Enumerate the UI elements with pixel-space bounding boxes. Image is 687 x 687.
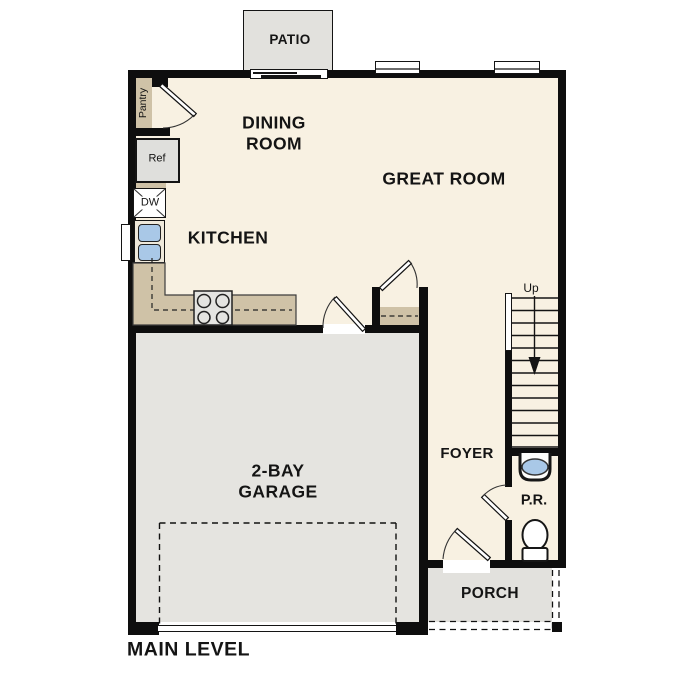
room-label-kitchen: KITCHEN — [188, 228, 269, 249]
coat-closet-door — [380, 261, 418, 291]
room-label-porch: PORCH — [461, 585, 519, 603]
page-title: MAIN LEVEL — [127, 639, 250, 662]
room-label-dining: DINING ROOM — [224, 112, 324, 153]
powder-room-door — [482, 485, 509, 520]
room-label-great: GREAT ROOM — [382, 169, 505, 190]
room-label-patio: PATIO — [269, 32, 310, 48]
plan-linework — [0, 0, 687, 687]
front-door — [443, 529, 490, 561]
floor-plan: PATIO DINING ROOM GREAT ROOM KITCHEN 2-B… — [0, 0, 687, 687]
room-label-powder-room: P.R. — [521, 492, 547, 509]
garage-bay-outline — [160, 523, 397, 624]
dishwasher-label: DW — [140, 197, 160, 210]
stove-icon — [194, 291, 232, 325]
vanity-sink-icon — [520, 453, 550, 480]
pantry-door — [160, 84, 197, 129]
pantry-label: Pantry — [137, 88, 149, 118]
garage-entry-door — [323, 297, 366, 332]
stairs-up-label: Up — [523, 281, 538, 295]
refrigerator-label: Ref — [148, 153, 165, 166]
room-label-garage: 2-BAY GARAGE — [218, 460, 338, 501]
room-label-foyer: FOYER — [440, 445, 493, 463]
toilet-icon — [523, 520, 548, 561]
